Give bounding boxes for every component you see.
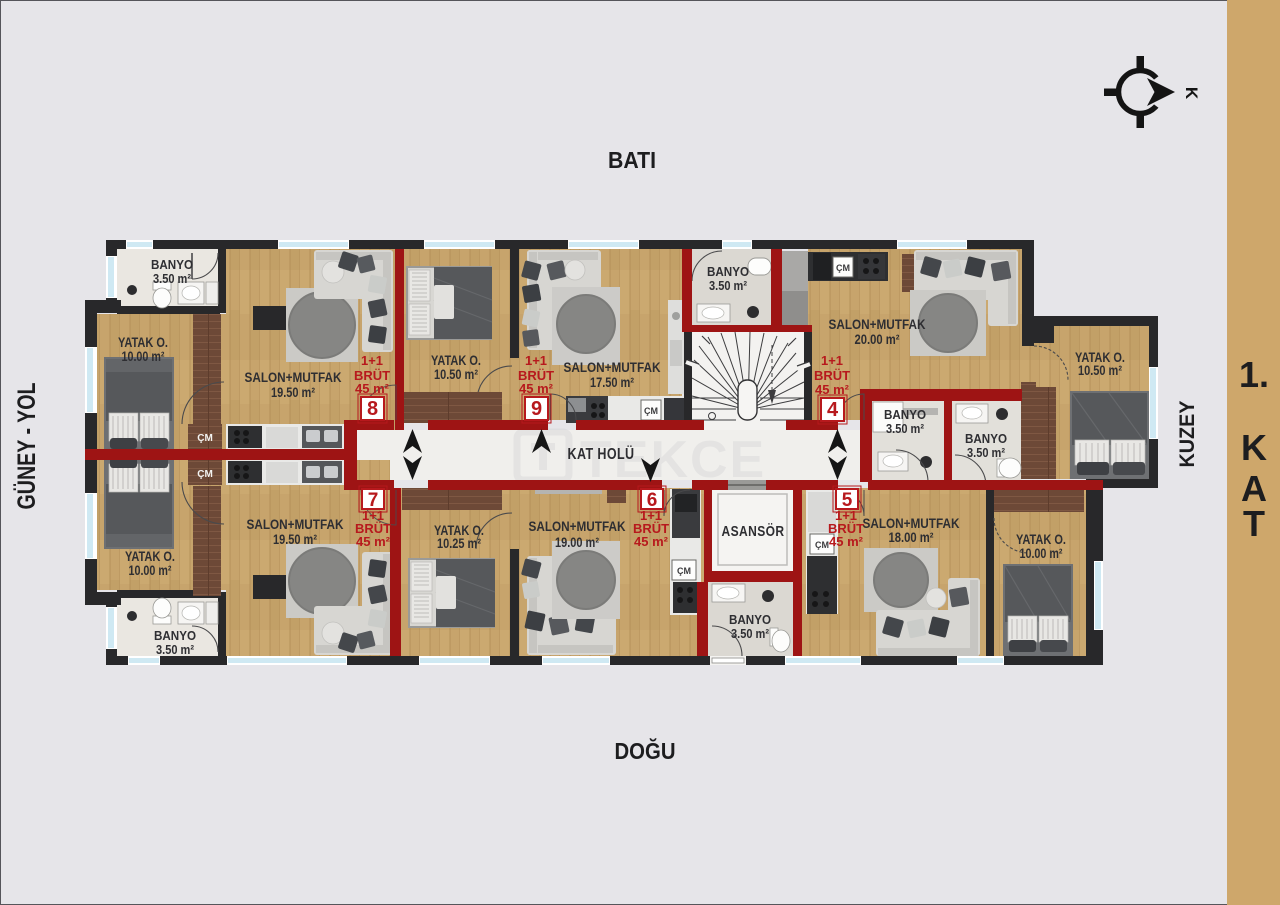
svg-text:SALON+MUTFAK: SALON+MUTFAK <box>863 516 960 531</box>
svg-text:19.50 m²: 19.50 m² <box>273 532 317 547</box>
svg-text:19.50 m²: 19.50 m² <box>271 385 315 400</box>
svg-text:ÇM: ÇM <box>197 469 213 480</box>
svg-text:3.50 m²: 3.50 m² <box>156 642 195 657</box>
svg-text:ÇM: ÇM <box>836 263 850 273</box>
svg-text:T: T <box>1243 503 1265 544</box>
svg-text:SALON+MUTFAK: SALON+MUTFAK <box>247 517 344 532</box>
svg-text:SALON+MUTFAK: SALON+MUTFAK <box>829 317 926 332</box>
svg-text:SALON+MUTFAK: SALON+MUTFAK <box>564 360 661 375</box>
svg-text:ÇM: ÇM <box>677 566 691 576</box>
svg-text:3.50 m²: 3.50 m² <box>709 278 748 293</box>
svg-text:20.00 m²: 20.00 m² <box>855 332 900 347</box>
svg-text:3.50 m²: 3.50 m² <box>153 271 192 286</box>
svg-text:10.25 m²: 10.25 m² <box>437 536 481 551</box>
svg-text:SALON+MUTFAK: SALON+MUTFAK <box>245 370 342 385</box>
svg-text:ÇM: ÇM <box>644 406 658 416</box>
svg-text:10.50 m²: 10.50 m² <box>1078 363 1122 378</box>
svg-text:9: 9 <box>531 398 542 420</box>
svg-text:ASANSÖR: ASANSÖR <box>722 523 785 540</box>
svg-text:1+1: 1+1 <box>821 353 843 368</box>
svg-text:45 m²: 45 m² <box>356 534 391 549</box>
svg-text:DOĞU: DOĞU <box>615 737 676 764</box>
svg-text:ÇM: ÇM <box>815 540 829 550</box>
svg-text:1.: 1. <box>1239 354 1269 395</box>
svg-text:YATAK O.: YATAK O. <box>1016 532 1066 547</box>
svg-text:1+1: 1+1 <box>361 353 383 368</box>
svg-text:BANYO: BANYO <box>884 408 926 422</box>
svg-text:YATAK O.: YATAK O. <box>125 549 175 564</box>
svg-text:18.00 m²: 18.00 m² <box>889 530 934 545</box>
svg-text:10.50 m²: 10.50 m² <box>434 367 478 382</box>
svg-text:1+1: 1+1 <box>525 353 547 368</box>
svg-text:4: 4 <box>827 399 839 421</box>
svg-text:BATI: BATI <box>608 147 656 173</box>
svg-text:8: 8 <box>367 398 378 420</box>
svg-text:K: K <box>1182 87 1201 100</box>
svg-text:YATAK O.: YATAK O. <box>431 353 481 368</box>
svg-text:KUZEY: KUZEY <box>1176 401 1199 468</box>
svg-text:GÜNEY - YOL: GÜNEY - YOL <box>12 383 41 510</box>
svg-text:ÇM: ÇM <box>197 433 213 444</box>
svg-text:SALON+MUTFAK: SALON+MUTFAK <box>529 519 626 534</box>
svg-text:KAT HOLÜ: KAT HOLÜ <box>568 444 635 463</box>
svg-text:K: K <box>1241 427 1267 468</box>
svg-text:45 m²: 45 m² <box>634 534 669 549</box>
svg-text:10.00 m²: 10.00 m² <box>122 349 165 364</box>
svg-text:BANYO: BANYO <box>729 612 771 627</box>
svg-text:17.50 m²: 17.50 m² <box>590 375 634 390</box>
svg-text:19.00 m²: 19.00 m² <box>555 535 599 550</box>
svg-text:3.50 m²: 3.50 m² <box>886 422 924 436</box>
svg-text:3.50 m²: 3.50 m² <box>967 446 1005 460</box>
svg-text:YATAK O.: YATAK O. <box>118 335 168 350</box>
svg-text:BANYO: BANYO <box>707 264 749 279</box>
svg-text:10.00 m²: 10.00 m² <box>129 563 172 578</box>
svg-text:10.00 m²: 10.00 m² <box>1020 546 1063 561</box>
svg-text:BANYO: BANYO <box>965 432 1007 446</box>
svg-text:45 m²: 45 m² <box>829 534 864 549</box>
svg-text:BANYO: BANYO <box>151 257 193 272</box>
svg-text:3.50 m²: 3.50 m² <box>731 626 770 641</box>
svg-text:BANYO: BANYO <box>154 628 196 643</box>
svg-text:BRÜT: BRÜT <box>814 368 850 383</box>
